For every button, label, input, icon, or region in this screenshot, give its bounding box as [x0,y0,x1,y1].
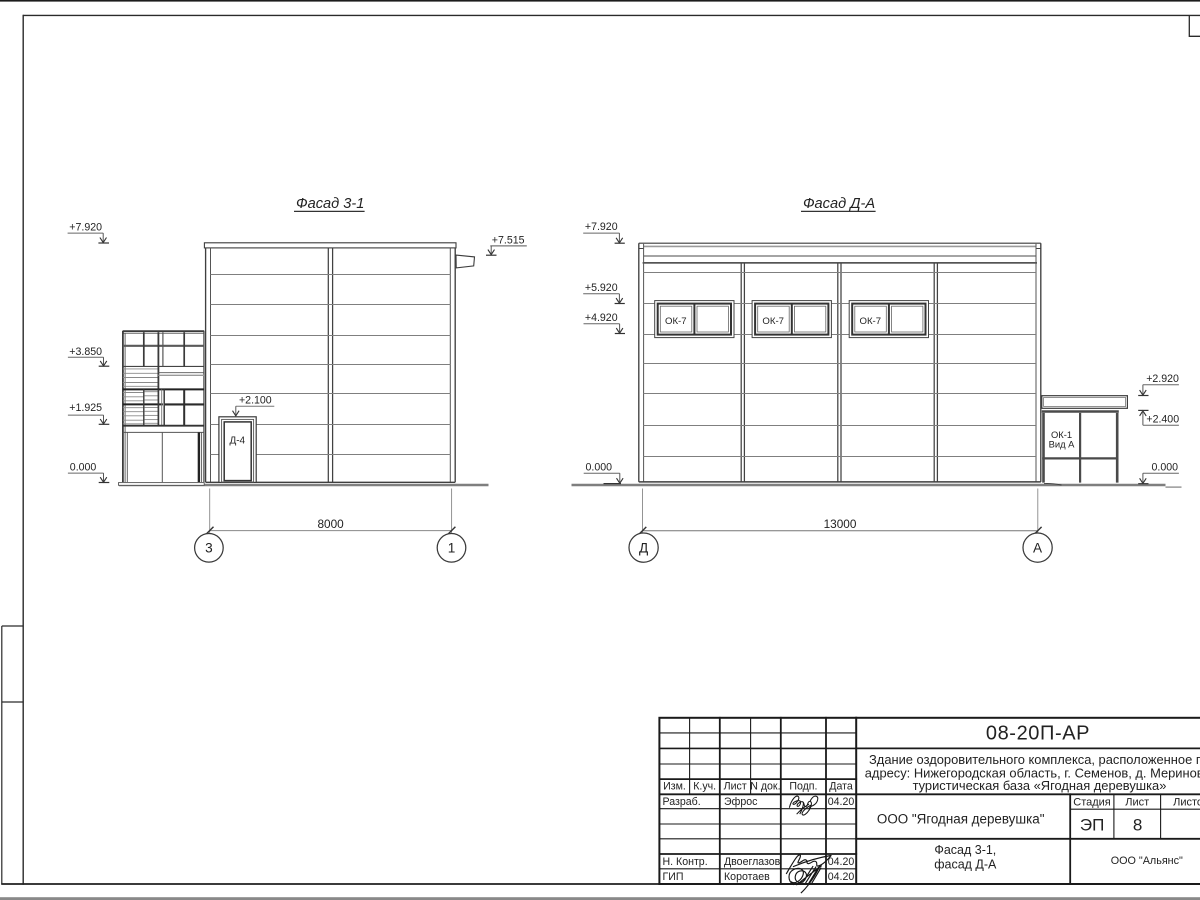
svg-text:Лист: Лист [1125,796,1149,808]
svg-text:А: А [1033,541,1043,556]
svg-text:3: 3 [205,541,213,556]
svg-text:Фасад 3-1,: Фасад 3-1, [934,843,996,857]
svg-text:ГИП: ГИП [663,871,684,883]
svg-text:ОК-7: ОК-7 [665,316,687,327]
svg-text:Листов: Листов [1173,796,1200,808]
svg-text:0.000: 0.000 [586,462,613,474]
svg-text:Стадия: Стадия [1073,796,1111,808]
svg-text:Дата: Дата [829,781,853,793]
svg-text:фасад Д-А: фасад Д-А [934,857,997,871]
svg-text:+7.920: +7.920 [69,221,102,233]
svg-text:ОК-7: ОК-7 [860,316,882,327]
svg-text:+2.920: +2.920 [1146,373,1179,385]
svg-text:+7.515: +7.515 [492,234,525,246]
svg-text:08-20П-АР: 08-20П-АР [986,722,1090,744]
svg-text:+2.400: +2.400 [1146,414,1179,426]
svg-text:Коротаев: Коротаев [724,871,770,883]
svg-text:Н. Контр.: Н. Контр. [663,856,708,868]
svg-text:N док.: N док. [750,781,780,793]
svg-text:1: 1 [448,541,456,556]
svg-text:+4.920: +4.920 [585,312,618,324]
svg-text:04.20: 04.20 [828,796,855,808]
svg-text:К.уч.: К.уч. [693,781,716,793]
svg-text:Фасад Д-А: Фасад Д-А [803,196,875,212]
svg-text:туристическая база «Ягодная де: туристическая база «Ягодная деревушка» [913,778,1167,793]
svg-text:04.20: 04.20 [828,871,855,883]
svg-text:0.000: 0.000 [1152,462,1179,474]
svg-text:0.000: 0.000 [70,461,97,473]
svg-text:Подп.: Подп. [789,781,817,793]
svg-text:+2.100: +2.100 [239,394,272,406]
svg-text:8000: 8000 [317,517,344,531]
svg-text:Изм.: Изм. [663,781,686,793]
svg-text:+3.850: +3.850 [69,346,102,358]
svg-text:Лист: Лист [724,781,747,793]
svg-text:ООО "Альянс": ООО "Альянс" [1111,855,1183,867]
svg-text:Д: Д [639,541,648,556]
svg-text:ЭП: ЭП [1080,815,1104,834]
svg-text:04.20: 04.20 [828,856,855,868]
svg-text:Д-4: Д-4 [229,436,245,447]
svg-text:Двоеглазов: Двоеглазов [724,856,781,868]
svg-text:+7.920: +7.920 [585,221,618,233]
svg-text:ООО "Ягодная деревушка": ООО "Ягодная деревушка" [877,811,1045,826]
svg-text:Вид А: Вид А [1049,439,1076,450]
svg-text:13000: 13000 [824,517,857,531]
svg-text:Эфрос: Эфрос [724,796,758,808]
svg-text:+5.920: +5.920 [585,282,618,294]
svg-text:Разраб.: Разраб. [663,796,701,808]
svg-text:+1.925: +1.925 [69,402,102,414]
svg-text:8: 8 [1133,815,1142,834]
svg-text:ОК-7: ОК-7 [762,316,784,327]
svg-text:Фасад 3-1: Фасад 3-1 [296,196,364,212]
